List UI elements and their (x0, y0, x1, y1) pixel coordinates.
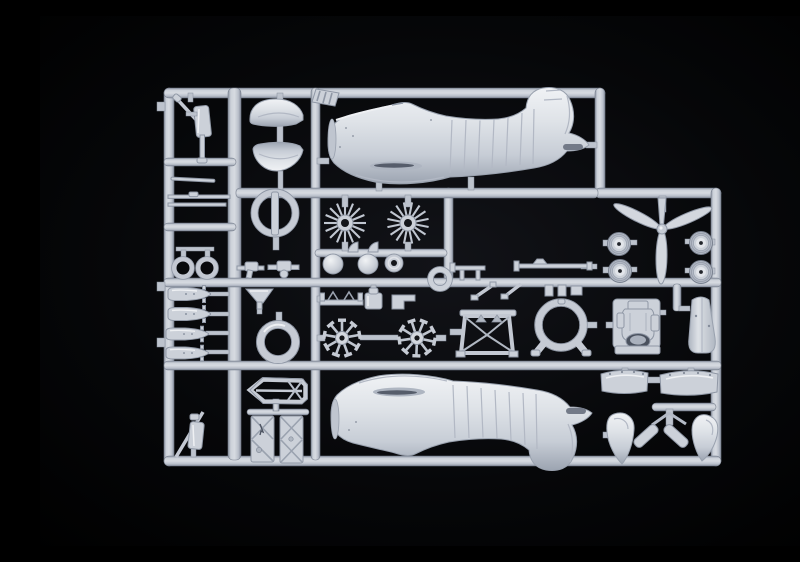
part-cylinder-row-sunburst-left (324, 202, 366, 244)
part-cowl-flap-band-right (660, 371, 718, 396)
part-small-fittings (545, 285, 582, 296)
photo-model-kit-sprue (40, 16, 800, 546)
sprue-photo-canvas (40, 16, 800, 546)
part-cowl-ring-with-axle (251, 189, 299, 237)
part-crankcase-domes (323, 254, 403, 274)
part-cowl-flap-band-left (601, 370, 648, 393)
part-hatch-panel-right (280, 416, 303, 463)
part-hatch-panel-left (251, 416, 274, 462)
part-engine-gearbox (613, 299, 660, 354)
